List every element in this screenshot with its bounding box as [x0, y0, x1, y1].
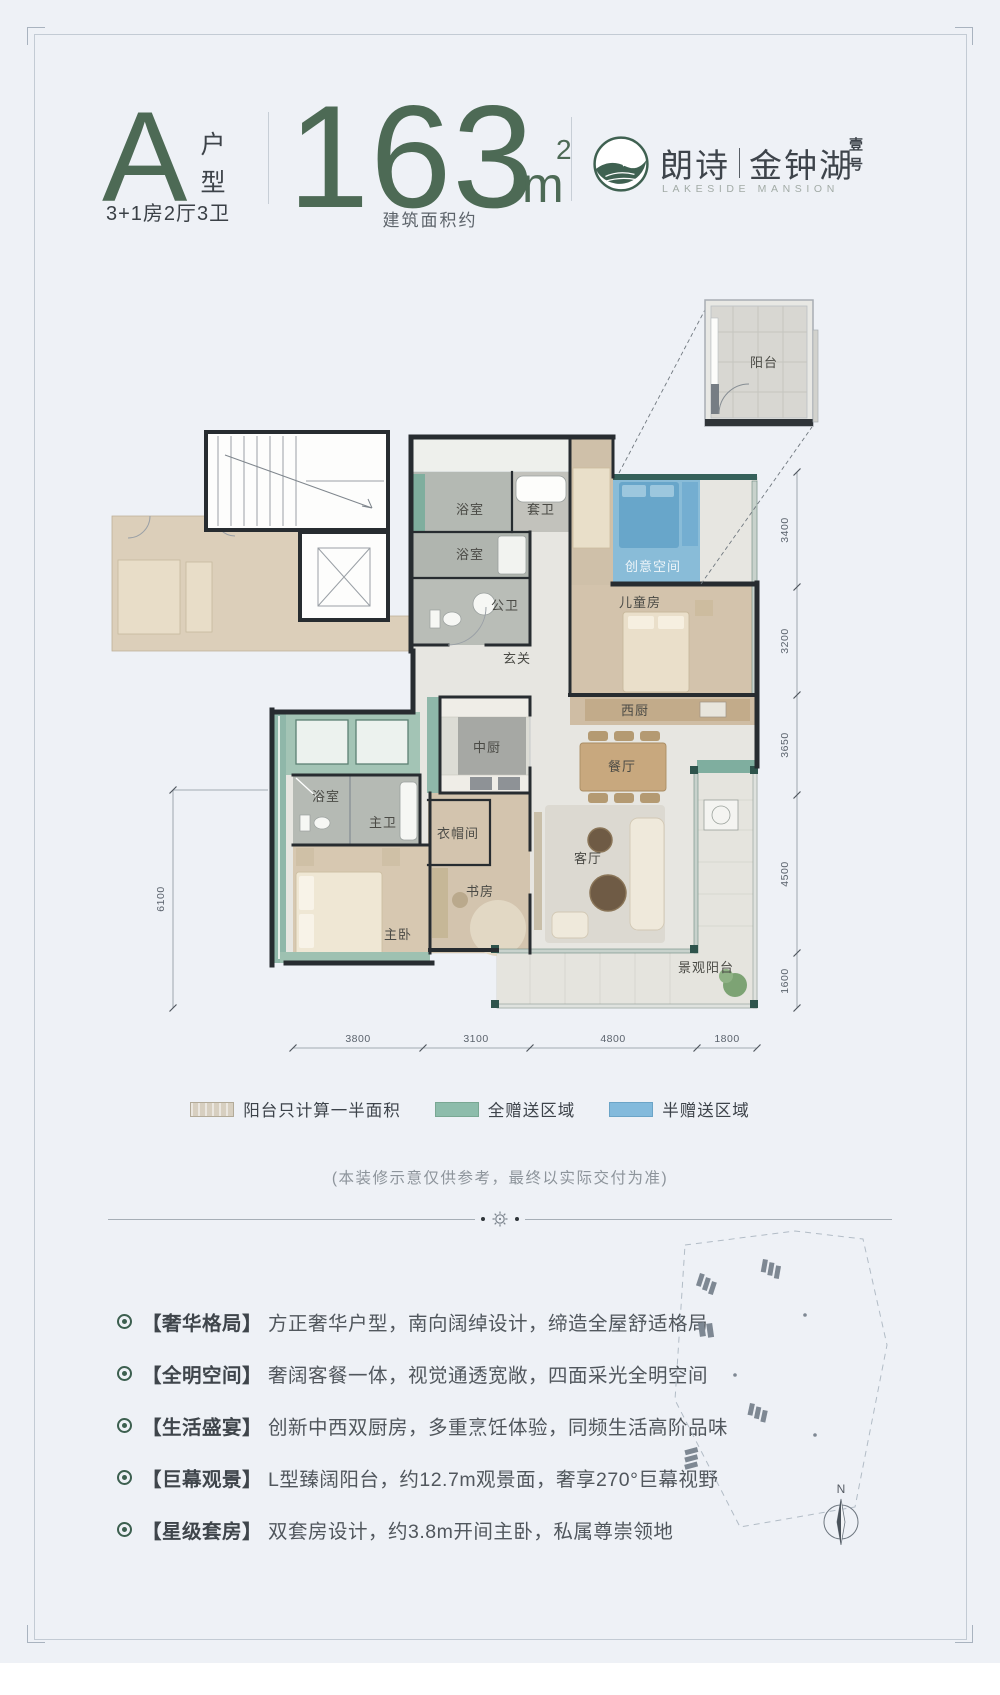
bullet-icon: [117, 1470, 132, 1485]
room-label-inset-balcony: 阳台: [750, 355, 778, 370]
legend-swatch-half-balcony: [190, 1102, 234, 1117]
svg-text:1600: 1600: [779, 968, 791, 993]
feature-item: 【全明空间】 奢阔客餐一体，视觉通透宽敞，四面采光全明空间: [117, 1362, 728, 1384]
divider-dot: [515, 1217, 519, 1221]
room-label-public-bath: 公卫: [491, 598, 519, 613]
brand-name: 朗诗 金钟湖: [660, 139, 854, 187]
dimension-bottom: 3800 3100 4800 1800: [290, 1033, 761, 1052]
gift-strip: [413, 474, 425, 532]
svg-text:3400: 3400: [779, 517, 791, 542]
svg-text:3200: 3200: [779, 628, 791, 653]
legend: 阳台只计算一半面积 全赠送区域 半赠送区域: [0, 1097, 970, 1121]
frame-corner-ornament: [955, 27, 973, 45]
svg-text:1800: 1800: [714, 1033, 739, 1045]
dimension-left: 6100: [155, 787, 268, 1012]
legend-swatch-full-gift: [435, 1102, 479, 1117]
room-label-dining: 餐厅: [608, 759, 636, 774]
room-label-master-bath-shower: 浴室: [312, 789, 340, 804]
brand-suffix: 壹号: [846, 137, 866, 177]
feature-text: 方正奢华户型，南向阔绰设计，缔造全屋舒适格局: [268, 1307, 708, 1336]
header-divider: [268, 112, 269, 204]
divider-line: [525, 1219, 892, 1220]
divider-line: [108, 1219, 475, 1220]
svg-text:6100: 6100: [155, 886, 167, 911]
area-caption: 建筑面积约: [315, 206, 545, 231]
brand-name-left: 朗诗: [660, 139, 730, 187]
room-label-living: 客厅: [574, 851, 602, 866]
room-label-chinese-kitchen: 中厨: [473, 740, 501, 755]
svg-text:4500: 4500: [779, 861, 791, 886]
feature-item: 【奢华格局】 方正奢华户型，南向阔绰设计，缔造全屋舒适格局: [117, 1310, 728, 1332]
svg-text:3650: 3650: [779, 732, 791, 757]
bullet-icon: [117, 1314, 132, 1329]
brand-name-en: LAKESIDE MANSION: [662, 183, 839, 195]
divider-dot: [481, 1217, 485, 1221]
bullet-icon: [117, 1522, 132, 1537]
stairwell: [206, 432, 388, 530]
brand-name-divider: [739, 148, 740, 178]
room-label-study: 书房: [466, 884, 494, 899]
room-label-suite-bath: 套卫: [527, 502, 555, 517]
legend-label: 全赠送区域: [488, 1097, 576, 1121]
feature-title: 【生活盛宴】: [142, 1411, 262, 1440]
dimension-right: 3400 3200 3650 4500 1600: [779, 469, 801, 1012]
svg-text:3100: 3100: [463, 1033, 488, 1045]
bottom-white-band: [0, 1663, 1000, 1695]
floor-plan: 浴室 套卫 浴室 公卫 玄关 创意空间 儿童房 西厨 中厨 餐厅 衣帽间 浴室 …: [100, 270, 820, 1070]
room-label-master-bath: 主卫: [369, 815, 397, 830]
common-area: [112, 432, 432, 651]
zone-living: [534, 805, 665, 943]
feature-item: 【星级套房】 双套房设计，约3.8m开间主卧，私属尊崇领地: [117, 1518, 728, 1540]
disclaimer-text: (本装修示意仅供参考，最终以实际交付为准): [0, 1166, 1000, 1188]
brand-name-right: 金钟湖: [749, 139, 854, 187]
frame-corner-ornament: [955, 1625, 973, 1643]
room-label-foyer: 玄关: [503, 651, 531, 666]
room-label-west-kitchen: 西厨: [621, 703, 649, 718]
gear-ornament-icon: [491, 1210, 509, 1228]
zone-west-kitchen: [570, 695, 757, 725]
room-label-master-bedroom: 主卧: [384, 927, 412, 942]
feature-text: 奢阔客餐一体，视觉通透宽敞，四面采光全明空间: [268, 1359, 708, 1388]
feature-item: 【巨幕观景】 L型臻阔阳台，约12.7m观景面，奢享270°巨幕视野: [117, 1466, 728, 1488]
bullet-icon: [117, 1366, 132, 1381]
area-exponent: 2: [556, 134, 572, 166]
room-label-bath-mid: 浴室: [456, 547, 484, 562]
zone-kids-room: [570, 585, 757, 695]
svg-text:4800: 4800: [600, 1033, 625, 1045]
elevator: [300, 532, 388, 620]
feature-title: 【奢华格局】: [142, 1307, 262, 1336]
bullet-icon: [117, 1418, 132, 1433]
feature-list: 【奢华格局】 方正奢华户型，南向阔绰设计，缔造全屋舒适格局 【全明空间】 奢阔客…: [117, 1310, 728, 1570]
legend-item: 半赠送区域: [609, 1097, 750, 1121]
brand-logo-icon: [592, 135, 650, 198]
room-label-view-balcony: 景观阳台: [678, 960, 734, 975]
frame-corner-ornament: [27, 1625, 45, 1643]
zone-study: [430, 793, 530, 956]
zone-master-bedroom: [280, 845, 430, 963]
poster-page: A 户型 3+1房2厅3卫 163 m 2 建筑面积约 朗诗 金钟湖 壹号 LA…: [0, 0, 1000, 1695]
building-cluster: [681, 1259, 817, 1470]
compass-icon: N: [824, 1482, 858, 1545]
feature-item: 【生活盛宴】 创新中西双厨房，多重烹饪体验，同频生活高阶品味: [117, 1414, 728, 1436]
legend-label: 阳台只计算一半面积: [243, 1097, 401, 1121]
legend-item: 阳台只计算一半面积: [190, 1097, 401, 1121]
feature-title: 【星级套房】: [142, 1515, 262, 1544]
leg­end-item: 全赠送区域: [435, 1097, 576, 1121]
layout-spec: 3+1房2厅3卫: [106, 197, 230, 226]
header-divider: [571, 117, 572, 201]
feature-title: 【全明空间】: [142, 1359, 262, 1388]
site-plan: N: [645, 1225, 895, 1545]
feature-text: 双套房设计，约3.8m开间主卧，私属尊崇领地: [268, 1515, 673, 1544]
zone-gift-band: [286, 712, 420, 775]
unit-type-label: 户型: [193, 131, 229, 207]
feature-title: 【巨幕观景】: [142, 1463, 262, 1492]
zone-master-bath: [293, 775, 420, 845]
svg-text:3800: 3800: [345, 1033, 370, 1045]
legend-swatch-half-gift: [609, 1102, 653, 1117]
frame-corner-ornament: [27, 27, 45, 45]
svg-text:N: N: [837, 1482, 846, 1496]
room-label-bath-top: 浴室: [456, 502, 484, 517]
legend-label: 半赠送区域: [662, 1097, 750, 1121]
room-label-cloakroom: 衣帽间: [437, 826, 479, 841]
room-label-kids-room: 儿童房: [619, 595, 661, 610]
room-label-creative-space: 创意空间: [625, 559, 681, 574]
